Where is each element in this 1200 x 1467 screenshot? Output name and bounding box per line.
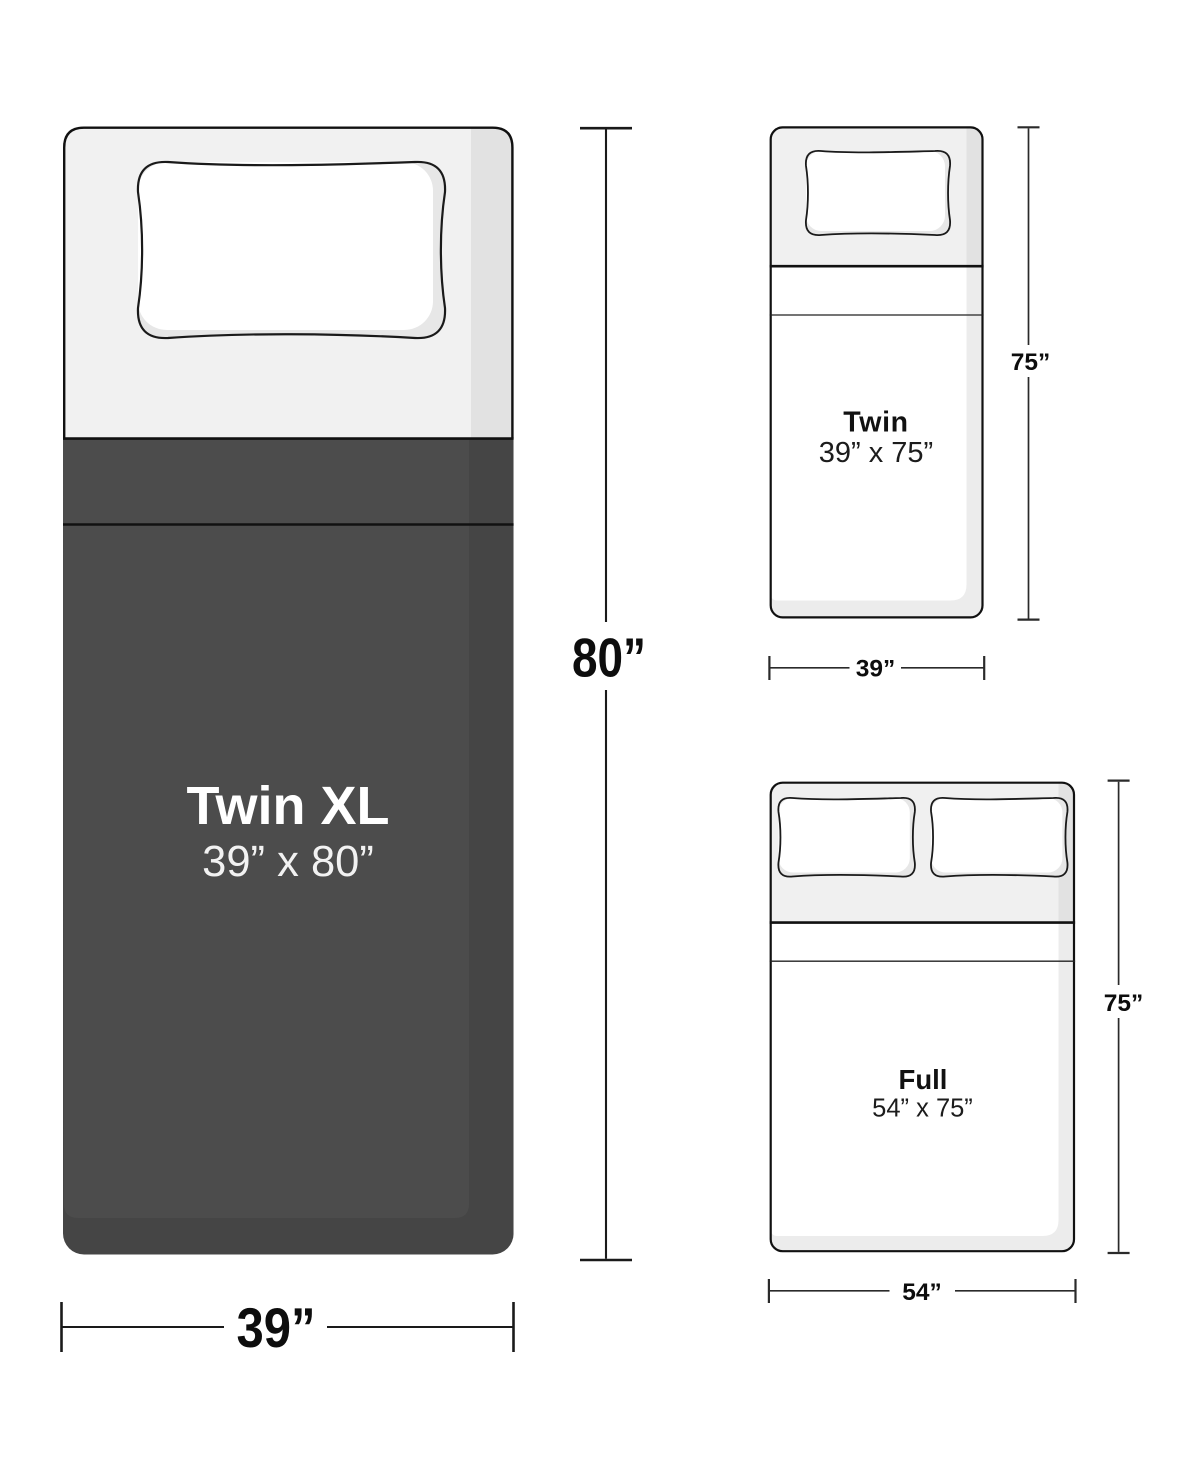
svg-text:54”: 54” xyxy=(902,1279,942,1306)
svg-text:Full: Full xyxy=(899,1064,948,1095)
svg-text:Twin XL: Twin XL xyxy=(187,776,390,836)
svg-text:80”: 80” xyxy=(572,627,646,689)
svg-text:54” x 75”: 54” x 75” xyxy=(872,1095,973,1123)
svg-text:39” x 80”: 39” x 80” xyxy=(202,838,374,886)
svg-text:39”: 39” xyxy=(237,1296,316,1359)
svg-text:39”: 39” xyxy=(856,656,896,683)
svg-text:Twin: Twin xyxy=(843,407,909,439)
svg-text:75”: 75” xyxy=(1104,990,1144,1017)
svg-text:75”: 75” xyxy=(1011,349,1051,376)
svg-text:39” x 75”: 39” x 75” xyxy=(819,437,933,469)
